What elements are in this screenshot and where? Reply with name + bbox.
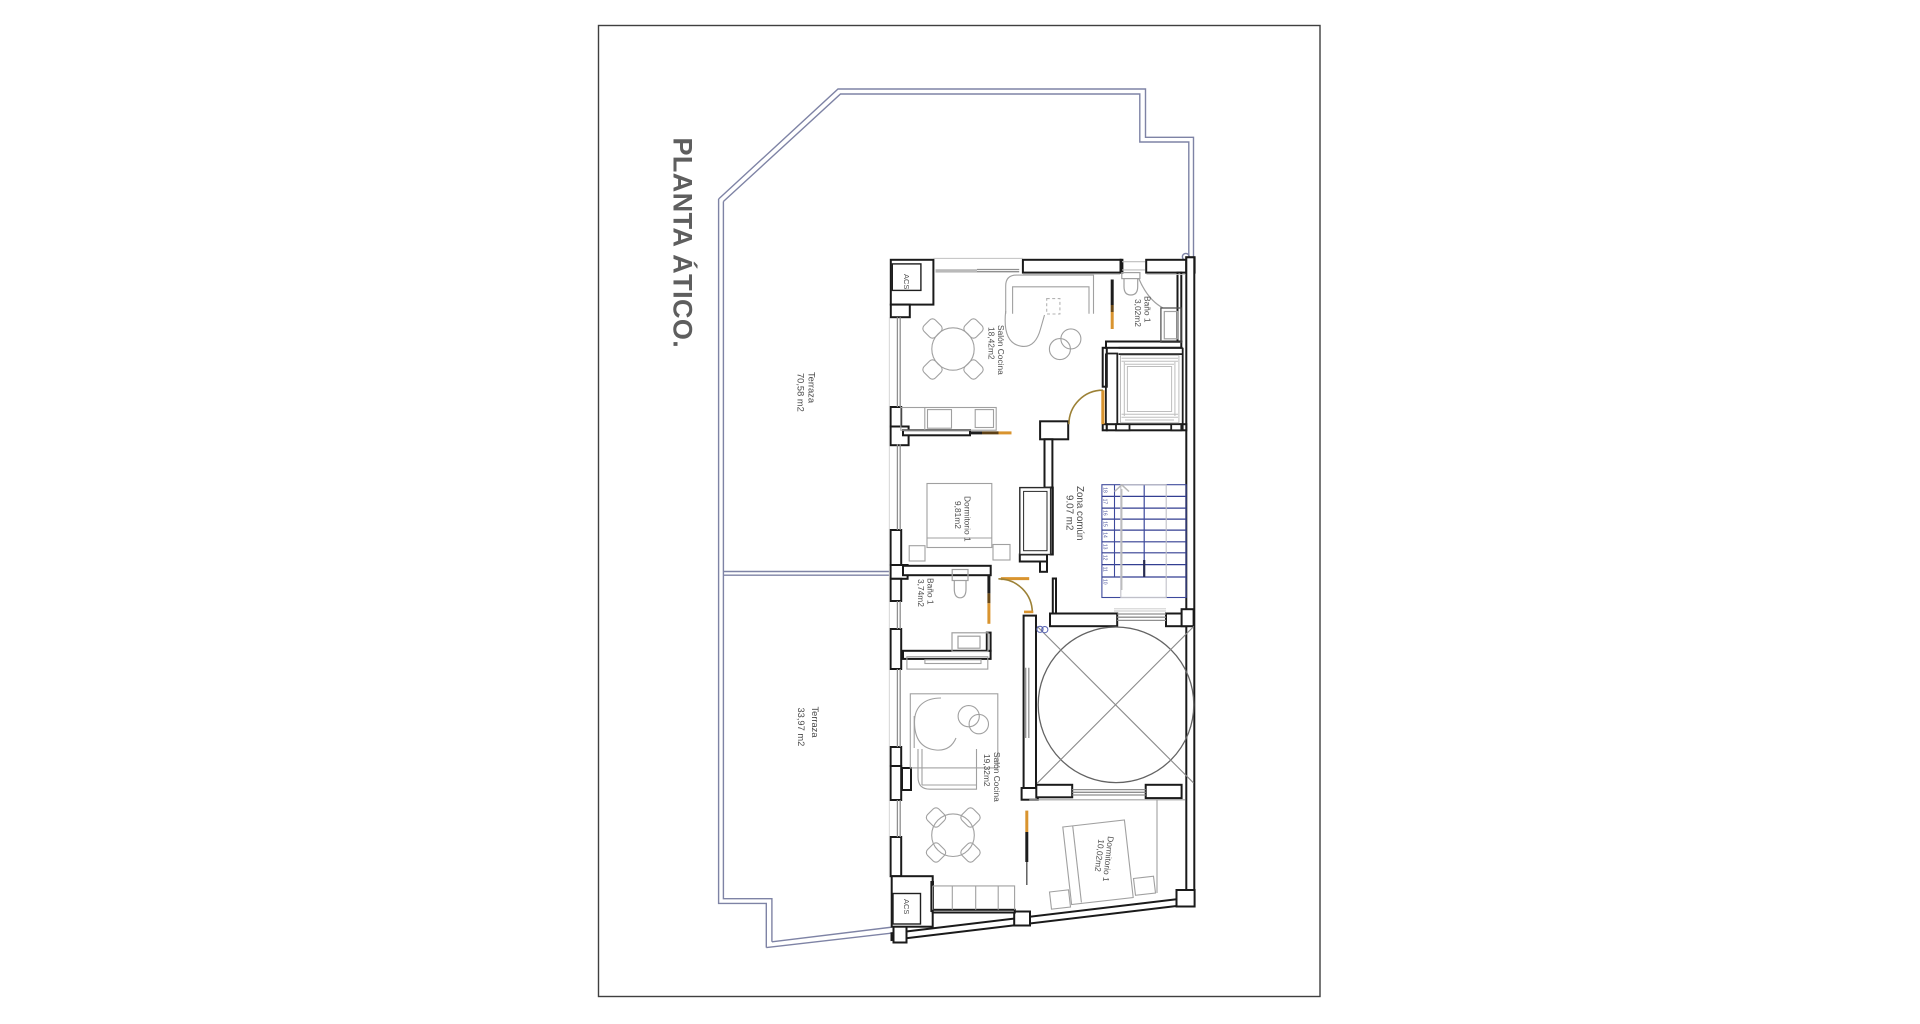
- svg-text:16: 16: [1101, 510, 1107, 516]
- svg-text:Terraza: Terraza: [810, 707, 820, 739]
- svg-text:14: 14: [1101, 532, 1107, 538]
- svg-text:9,81m2: 9,81m2: [953, 501, 963, 529]
- svg-text:Zona común: Zona común: [1074, 486, 1085, 540]
- svg-text:17: 17: [1101, 499, 1107, 505]
- svg-text:11: 11: [1101, 567, 1107, 572]
- svg-text:3,74m2: 3,74m2: [916, 579, 926, 607]
- svg-text:3,02m2: 3,02m2: [1133, 299, 1143, 327]
- svg-text:PLANTA ÁTICO.: PLANTA ÁTICO.: [668, 138, 699, 349]
- svg-text:Salón Cocina: Salón Cocina: [996, 325, 1006, 375]
- svg-text:10: 10: [1101, 579, 1107, 585]
- svg-text:13: 13: [1101, 544, 1107, 550]
- svg-text:15: 15: [1101, 521, 1107, 527]
- svg-text:33,97 m2: 33,97 m2: [796, 708, 806, 747]
- svg-text:Terraza: Terraza: [807, 372, 817, 404]
- svg-text:ACS: ACS: [902, 274, 911, 289]
- svg-text:Baño 1: Baño 1: [1143, 296, 1153, 323]
- svg-text:18,42m2: 18,42m2: [987, 327, 997, 360]
- svg-text:ACS: ACS: [902, 899, 911, 914]
- svg-text:18: 18: [1101, 487, 1107, 493]
- svg-text:19,32m2: 19,32m2: [982, 754, 992, 787]
- svg-text:9.07 m2: 9.07 m2: [1064, 495, 1075, 530]
- svg-text:12: 12: [1101, 555, 1107, 561]
- svg-text:Salón Cocina: Salón Cocina: [992, 752, 1002, 802]
- svg-text:Baño 1: Baño 1: [926, 578, 936, 605]
- svg-text:70,58 m2: 70,58 m2: [796, 373, 806, 412]
